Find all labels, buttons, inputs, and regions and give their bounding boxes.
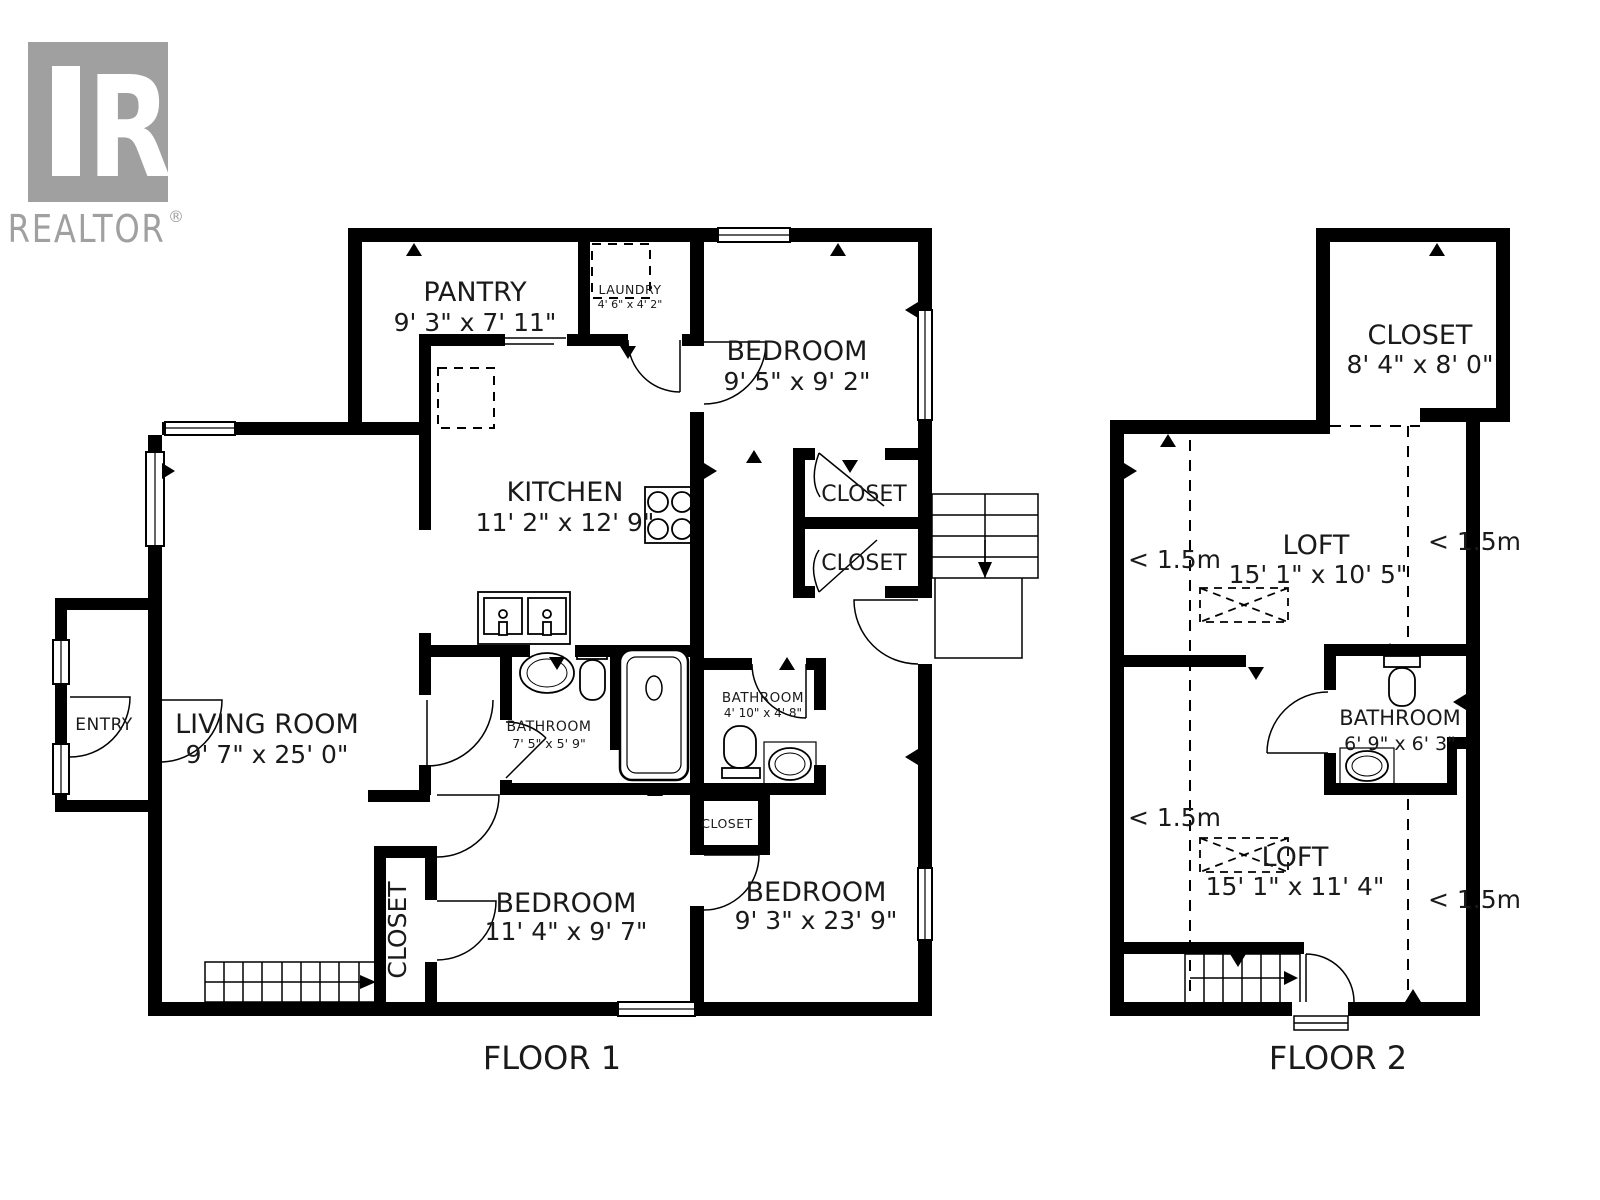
toilet-icon <box>580 660 605 700</box>
stairs-direction-arrow <box>1284 971 1298 985</box>
room-size-loft-lower: 15' 1" x 11' 4" <box>1206 872 1385 901</box>
burner <box>672 519 692 539</box>
kitchen-sink-icon <box>478 592 570 644</box>
room-label-loft-upper: LOFT <box>1283 530 1350 561</box>
faucet <box>499 610 507 618</box>
realtor-wordmark: REALTOR <box>8 208 166 252</box>
height-marker-lower-left: < 1.5m <box>1128 803 1221 832</box>
room-label-closet-upper: CLOSET <box>821 482 907 507</box>
realtor-logo-r-icon: R <box>87 46 171 210</box>
room-label-laundry: LAUNDRY <box>599 282 662 297</box>
sink-bowl <box>1352 756 1382 776</box>
room-size-bathroom-small: 4' 10" x 4' 8" <box>724 706 802 720</box>
room-size-bathroom: 6' 9" x 6' 3" <box>1344 733 1456 755</box>
bathtub-icon <box>620 650 688 780</box>
faucet <box>543 610 551 618</box>
room-label-bathroom: BATHROOM <box>1339 706 1461 730</box>
toilet-icon <box>1389 668 1415 706</box>
floor1-plan: PANTRY 9' 3" x 7' 11" LAUNDRY 4' 6" x 4'… <box>53 228 1038 1077</box>
room-label-kitchen: KITCHEN <box>507 477 624 508</box>
room-size-bathroom-main: 7' 5" x 5' 9" <box>512 736 585 751</box>
floor1-caption: FLOOR 1 <box>483 1039 621 1077</box>
room-label-bedroom-right: BEDROOM <box>746 877 887 908</box>
entry-step <box>1294 1016 1348 1030</box>
room-size-bedroom-right: 9' 3" x 23' 9" <box>735 906 898 935</box>
floor1-exterior-stairs <box>932 494 1038 658</box>
floorplan-page: R REALTOR ® <box>0 0 1600 1200</box>
floor2-stairs <box>1185 954 1348 1030</box>
faucet-base <box>543 622 551 635</box>
room-size-laundry: 4' 6" x 4' 2" <box>598 298 663 311</box>
room-label-bathroom-main: BATHROOM <box>506 719 591 735</box>
stairs-treads <box>1185 954 1300 1002</box>
room-size-pantry: 9' 3" x 7' 11" <box>394 308 557 337</box>
room-label-living: LIVING ROOM <box>175 709 359 740</box>
room-size-bedroom-left: 11' 4" x 9' 7" <box>485 917 648 946</box>
room-label-closet-stairs: CLOSET <box>383 881 412 979</box>
floorplan-drawing: R REALTOR ® <box>0 0 1600 1200</box>
floor2-caption: FLOOR 2 <box>1269 1039 1407 1077</box>
room-label-bedroom-top: BEDROOM <box>727 336 868 367</box>
height-marker-upper-left: < 1.5m <box>1128 545 1221 574</box>
floor2-plan: CLOSET 8' 4" x 8' 0" LOFT 15' 1" x 10' 5… <box>1110 228 1521 1077</box>
room-size-bedroom-top: 9' 5" x 9' 2" <box>724 367 871 396</box>
room-label-closet-hall: CLOSET <box>701 816 753 831</box>
stairs-direction-arrow <box>360 975 376 989</box>
toilet-tank <box>722 768 760 778</box>
sink-bowl <box>527 659 567 687</box>
floor1-labels: PANTRY 9' 3" x 7' 11" LAUNDRY 4' 6" x 4'… <box>75 277 907 1077</box>
height-marker-upper-right: < 1.5m <box>1428 527 1521 556</box>
bathtub-rim <box>620 650 688 780</box>
room-label-entry: ENTRY <box>75 715 133 735</box>
realtor-logo-bar <box>52 66 80 176</box>
room-label-bedroom-left: BEDROOM <box>496 888 637 919</box>
exterior-stairs-arrowhead <box>978 562 992 578</box>
room-label-bathroom-small: BATHROOM <box>722 690 804 706</box>
room-size-loft-upper: 15' 1" x 10' 5" <box>1229 560 1408 589</box>
stairs-treads <box>205 962 378 1002</box>
faucet-base <box>499 622 507 635</box>
room-label-pantry: PANTRY <box>423 277 527 308</box>
bathroom-small-fixtures <box>722 726 816 786</box>
floor1-stairs <box>205 962 378 1002</box>
room-size-living: 9' 7" x 25' 0" <box>186 740 349 769</box>
room-size-kitchen: 11' 2" x 12' 9" <box>476 508 655 537</box>
registered-trademark-icon: ® <box>168 207 184 226</box>
room-label-closet: CLOSET <box>1368 320 1473 351</box>
toilet-icon <box>724 726 756 768</box>
toilet-tank <box>1384 656 1420 667</box>
burner <box>672 492 692 512</box>
room-label-loft-lower: LOFT <box>1262 842 1329 873</box>
realtor-logo: R REALTOR ® <box>8 42 184 252</box>
sink-bowl <box>775 753 805 775</box>
height-marker-lower-right: < 1.5m <box>1428 885 1521 914</box>
room-label-closet-lower: CLOSET <box>821 551 907 576</box>
room-size-closet: 8' 4" x 8' 0" <box>1347 350 1494 379</box>
